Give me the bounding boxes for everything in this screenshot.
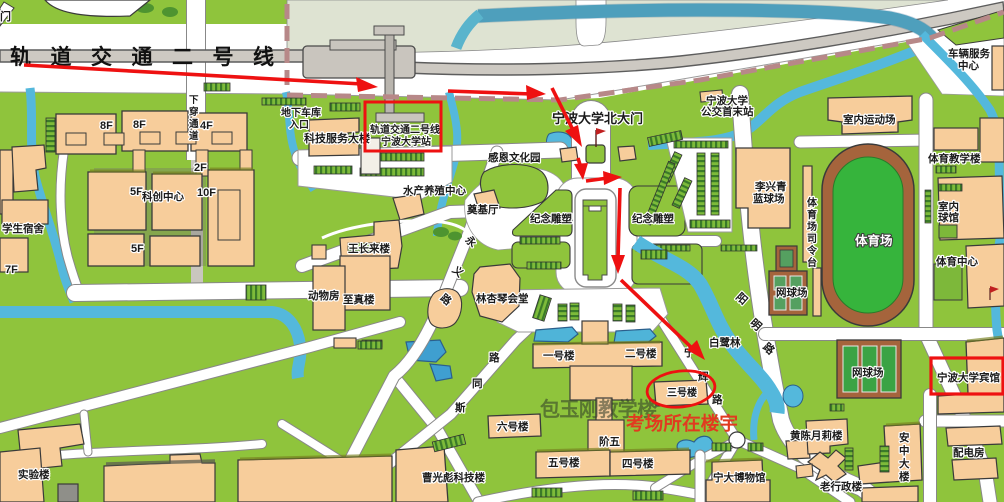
svg-text:穿: 穿 (189, 106, 199, 118)
svg-text:轨道交通二号线: 轨道交通二号线 (370, 123, 440, 136)
svg-text:入口: 入口 (289, 119, 309, 131)
svg-text:实验楼: 实验楼 (18, 468, 50, 481)
svg-text:蓝球场: 蓝球场 (753, 192, 785, 205)
svg-text:体: 体 (807, 196, 818, 209)
svg-text:曹光彪科技楼: 曹光彪科技楼 (422, 471, 485, 484)
svg-text:中心: 中心 (958, 59, 979, 72)
svg-text:林杏琴会堂: 林杏琴会堂 (476, 292, 529, 305)
svg-text:2F: 2F (194, 162, 207, 174)
svg-text:配电房: 配电房 (953, 446, 985, 459)
svg-text:王长来楼: 王长来楼 (348, 242, 390, 255)
svg-text:大: 大 (899, 457, 910, 470)
svg-text:五号楼: 五号楼 (548, 456, 580, 469)
svg-text:黄陈月莉楼: 黄陈月莉楼 (790, 429, 843, 442)
svg-text:道: 道 (189, 130, 199, 142)
svg-text:下: 下 (189, 95, 199, 106)
svg-text:纪念雕塑: 纪念雕塑 (530, 212, 572, 225)
svg-text:体育中心: 体育中心 (936, 255, 978, 268)
svg-text:车辆服务: 车辆服务 (948, 47, 990, 60)
svg-text:场: 场 (807, 220, 817, 233)
svg-text:网球场: 网球场 (776, 286, 808, 299)
svg-text:斯: 斯 (455, 401, 466, 414)
svg-text:8F: 8F (100, 120, 113, 132)
svg-text:球馆: 球馆 (938, 211, 959, 224)
svg-text:7F: 7F (5, 264, 18, 276)
svg-text:体育教学楼: 体育教学楼 (928, 152, 981, 165)
svg-text:室内运动场: 室内运动场 (843, 113, 896, 126)
svg-text:老行政楼: 老行政楼 (819, 480, 862, 493)
svg-text:至真楼: 至真楼 (343, 293, 375, 306)
svg-text:网球场: 网球场 (852, 366, 884, 379)
svg-text:四号楼: 四号楼 (622, 457, 654, 470)
svg-text:水产养殖中心: 水产养殖中心 (402, 184, 466, 197)
svg-text:路: 路 (712, 393, 723, 406)
svg-text:科技服务大楼: 科技服务大楼 (304, 131, 370, 145)
svg-text:三号楼: 三号楼 (667, 386, 697, 399)
svg-text:白鹭林: 白鹭林 (709, 336, 741, 349)
svg-text:纪念雕塑: 纪念雕塑 (632, 212, 674, 225)
svg-text:宁大博物馆: 宁大博物馆 (713, 471, 766, 484)
svg-text:台: 台 (807, 256, 817, 269)
svg-text:育: 育 (807, 208, 817, 221)
svg-text:一号楼: 一号楼 (543, 349, 575, 362)
svg-text:公交首末站: 公交首末站 (701, 105, 754, 118)
svg-text:考场所在楼宇: 考场所在楼宇 (626, 413, 738, 434)
svg-text:地下车库: 地下车库 (281, 106, 321, 119)
svg-text:楼: 楼 (899, 470, 910, 483)
svg-text:同: 同 (472, 378, 483, 390)
svg-text:动物房: 动物房 (308, 289, 340, 302)
svg-text:体育场: 体育场 (855, 233, 893, 248)
svg-text:二号楼: 二号楼 (625, 347, 657, 360)
svg-text:中: 中 (899, 444, 910, 457)
svg-text:司: 司 (807, 233, 817, 245)
svg-text:六号楼: 六号楼 (497, 420, 529, 433)
svg-text:路: 路 (489, 351, 500, 364)
svg-text:宁波大学宾馆: 宁波大学宾馆 (937, 371, 1000, 384)
svg-text:奠基厅: 奠基厅 (466, 203, 499, 216)
svg-text:4F: 4F (200, 120, 213, 132)
svg-text:科创中心: 科创中心 (142, 190, 184, 203)
svg-text:8F: 8F (133, 119, 146, 131)
svg-text:李兴青: 李兴青 (754, 180, 787, 193)
svg-text:通: 通 (189, 119, 199, 130)
svg-text:宁波大学站: 宁波大学站 (381, 135, 431, 148)
svg-text:学生宿舍: 学生宿舍 (2, 222, 44, 235)
svg-text:感恩文化园: 感恩文化园 (488, 151, 541, 164)
svg-text:阶五: 阶五 (599, 435, 620, 448)
svg-text:5F: 5F (131, 243, 144, 255)
svg-text:门: 门 (0, 9, 11, 23)
svg-text:令: 令 (806, 244, 818, 257)
svg-text:10F: 10F (197, 187, 216, 199)
svg-text:安: 安 (899, 431, 910, 444)
